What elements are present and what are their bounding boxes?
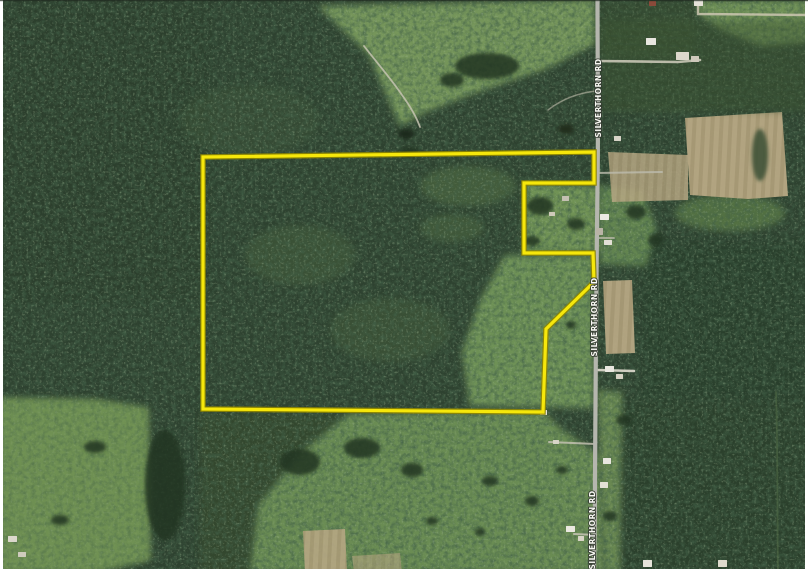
tree-cluster (616, 415, 632, 425)
tree-cluster (566, 321, 576, 329)
building (605, 366, 614, 372)
aerial-parcel-map: SILVERTHORN RDSILVERTHORN RDSILVERTHORN … (0, 0, 808, 572)
building (8, 536, 17, 542)
tree-cluster (280, 449, 320, 475)
pond (752, 129, 768, 181)
terrain-patch (608, 152, 688, 202)
terrain-patch (303, 529, 347, 572)
building (691, 56, 699, 62)
tree-cluster (603, 511, 617, 521)
building (549, 212, 555, 216)
terrain-patch (0, 398, 150, 572)
pond (558, 124, 574, 134)
driveway (596, 172, 662, 173)
building (616, 374, 623, 379)
tree-cluster (482, 476, 498, 486)
building (614, 136, 621, 141)
building (718, 560, 727, 567)
tree-cluster (51, 515, 69, 525)
terrain-patch (685, 112, 788, 199)
pond (398, 129, 414, 139)
building (603, 458, 611, 464)
tree-cluster (426, 517, 438, 525)
building (676, 52, 689, 60)
building (604, 240, 612, 245)
building (578, 536, 584, 541)
tree-cluster (475, 528, 485, 536)
tree-cluster (648, 234, 664, 246)
tree-cluster (440, 73, 464, 87)
road-label: SILVERTHORN RD (590, 277, 599, 356)
tree-cluster (525, 496, 539, 506)
building (566, 526, 575, 532)
building (646, 38, 656, 45)
tree-cluster (401, 463, 423, 477)
frame-top-edge (0, 0, 808, 1)
building (18, 552, 26, 557)
tree-cluster (84, 441, 106, 453)
building (553, 440, 559, 444)
building (596, 228, 603, 235)
tree-cluster (455, 53, 519, 79)
road-label: SILVERTHORN RD (594, 58, 603, 137)
building (600, 482, 608, 488)
driveway (597, 370, 634, 371)
building (562, 196, 569, 201)
tree-cluster (556, 466, 568, 474)
tree-cluster (145, 430, 185, 540)
tree-cluster (567, 218, 585, 230)
tree-cluster (344, 438, 380, 458)
building (643, 560, 652, 567)
terrain-patch (603, 280, 635, 354)
aerial-map-canvas: SILVERTHORN RDSILVERTHORN RDSILVERTHORN … (0, 0, 808, 572)
frame-left (0, 0, 3, 572)
building (600, 214, 609, 220)
terrain-patch (600, 0, 695, 55)
tree-cluster (626, 205, 646, 219)
building (649, 1, 656, 6)
road-label: SILVERTHORN RD (588, 490, 597, 569)
